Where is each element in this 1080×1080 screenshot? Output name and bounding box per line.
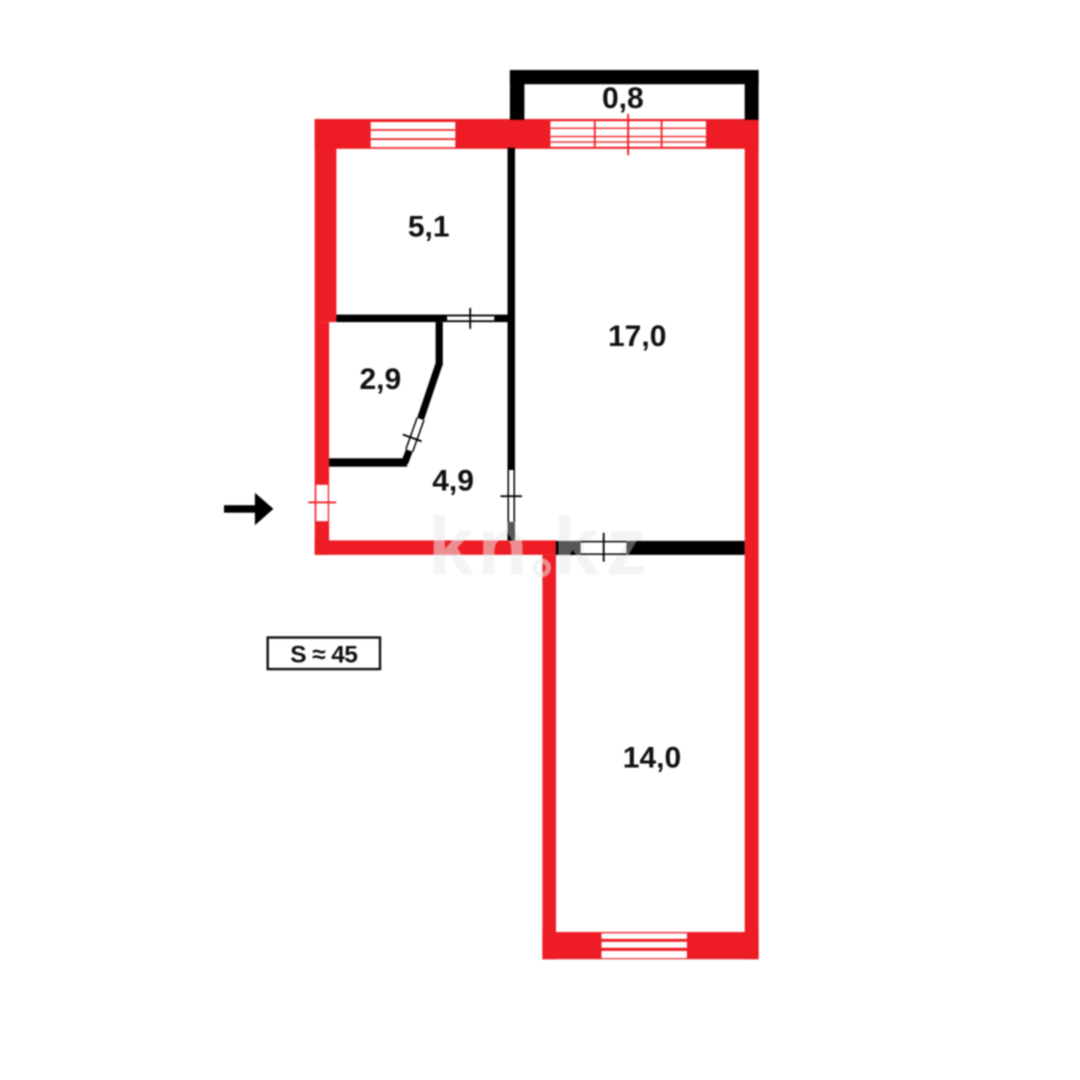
svg-text:14,0: 14,0: [623, 742, 681, 775]
svg-text:0,8: 0,8: [602, 82, 644, 115]
svg-text:5,1: 5,1: [408, 210, 450, 243]
svg-text:k: k: [428, 501, 474, 592]
svg-text:4,9: 4,9: [432, 465, 474, 498]
svg-text:n: n: [478, 501, 528, 592]
svg-text:S ≈ 45: S ≈ 45: [290, 642, 357, 669]
svg-text:2,9: 2,9: [359, 363, 401, 396]
svg-text:17,0: 17,0: [608, 320, 666, 353]
